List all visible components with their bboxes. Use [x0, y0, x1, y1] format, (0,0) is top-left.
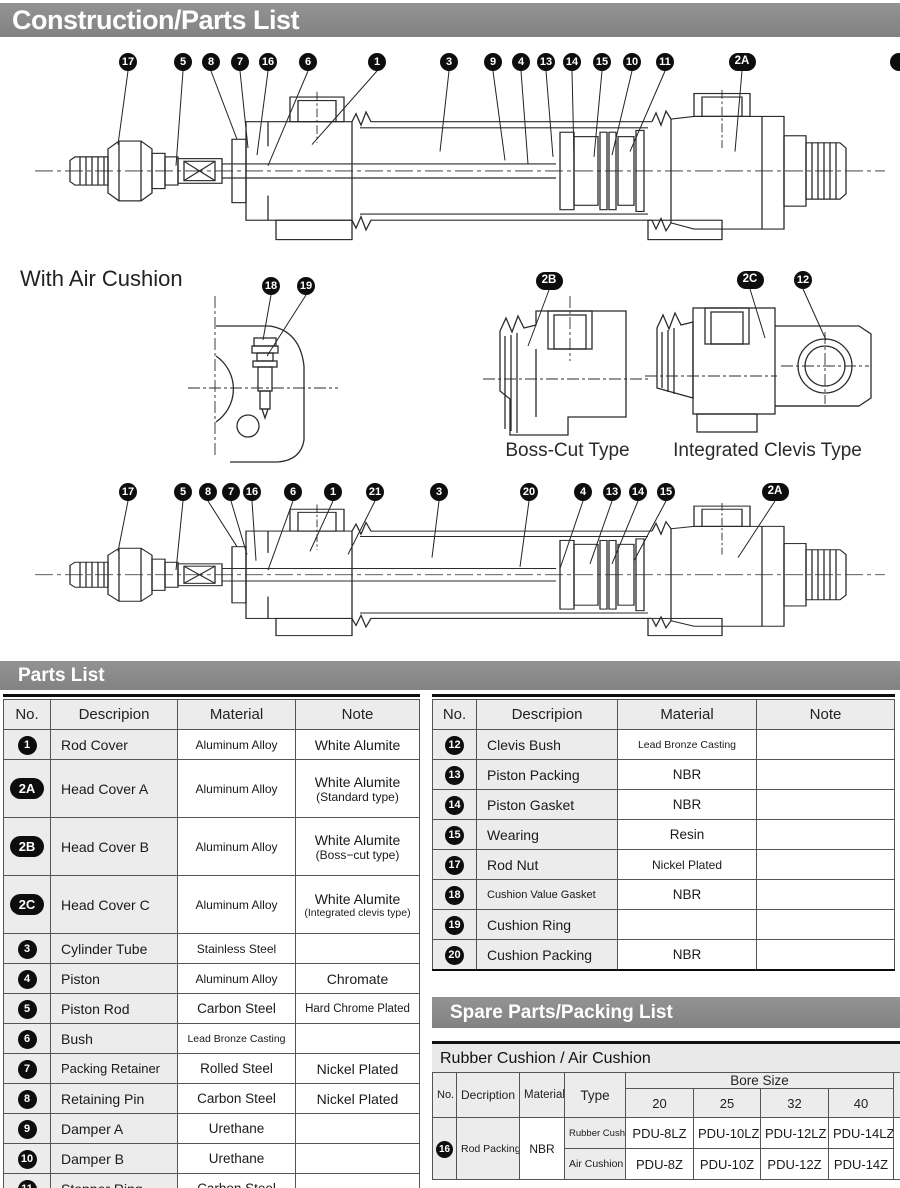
part-no-cell: 17 — [433, 850, 477, 880]
part-number-badge: 1 — [18, 736, 37, 755]
note-cell: White Alumite(Standard type) — [296, 760, 420, 818]
bore-size-header: Bore Size — [626, 1073, 894, 1089]
material-cell: Aluminum Alloy — [178, 876, 296, 934]
note-cell — [757, 820, 895, 850]
part-no-cell: 16 — [433, 1118, 457, 1180]
parts-table: No.DescripionMaterialNote12Clevis BushLe… — [432, 699, 895, 971]
note-cell — [757, 940, 895, 971]
table-row: 5Piston RodCarbon SteelHard Chrome Plate… — [4, 994, 420, 1024]
table-row: 4PistonAluminum AlloyChromate — [4, 964, 420, 994]
part-number-badge: 17 — [445, 856, 464, 875]
column-header: Descripion — [51, 700, 178, 730]
spare-parts-table: No.DecriptionMaterialTypeBore Size202532… — [432, 1072, 900, 1180]
description-cell: Rod Nut — [477, 850, 618, 880]
parts-table-right: No.DescripionMaterialNote12Clevis BushLe… — [432, 694, 895, 971]
part-number-badge: 20 — [445, 946, 464, 965]
part-no-cell: 14 — [433, 790, 477, 820]
table-row: 2AHead Cover AAluminum AlloyWhite Alumit… — [4, 760, 420, 818]
material-cell: Carbon Steel — [178, 1084, 296, 1114]
part-no-cell: 2C — [4, 876, 51, 934]
part-number-badge: 16 — [436, 1141, 453, 1158]
material-cell — [618, 910, 757, 940]
description-cell: Cylinder Tube — [51, 934, 178, 964]
description-cell: Head Cover A — [51, 760, 178, 818]
part-no-cell: 3 — [4, 934, 51, 964]
part-number-badge: 13 — [445, 766, 464, 785]
description-cell: Packing Retainer — [51, 1054, 178, 1084]
callout-15: 15 — [657, 483, 675, 501]
part-no-cell: 8 — [4, 1084, 51, 1114]
part-no-cell: 13 — [433, 760, 477, 790]
note-cell: Nickel Plated — [296, 1084, 420, 1114]
spare-data-row: 16Rod PackingNBRRubber CushionPDU-8LZPDU… — [433, 1118, 900, 1149]
callout-16: 16 — [243, 483, 261, 501]
callout-12: 12 — [794, 271, 812, 289]
note-cell: White Alumite(Integrated clevis type) — [296, 876, 420, 934]
column-header: Material — [178, 700, 296, 730]
callout-9: 9 — [484, 53, 502, 71]
callout-8: 8 — [199, 483, 217, 501]
part-number-badge: 6 — [18, 1030, 37, 1049]
description-cell: Rod Packing — [457, 1118, 520, 1180]
material-cell: NBR — [618, 880, 757, 910]
table-row: 15WearingResin — [433, 820, 895, 850]
callout-3: 3 — [430, 483, 448, 501]
description-cell: Damper B — [51, 1144, 178, 1174]
with-air-cushion-label: With Air Cushion — [20, 266, 183, 292]
callout-17: 17 — [119, 483, 137, 501]
callout-5: 5 — [174, 53, 192, 71]
part-no-cell: 15 — [433, 820, 477, 850]
table-row: 13Piston PackingNBR — [433, 760, 895, 790]
description-cell: Cushion Packing — [477, 940, 618, 971]
table-row: 3Cylinder TubeStainless Steel — [4, 934, 420, 964]
column-header: No. — [433, 700, 477, 730]
note-cell — [296, 1114, 420, 1144]
note-subtext: (Integrated clevis type) — [300, 907, 415, 919]
type-cell: Air Cushion — [565, 1149, 626, 1180]
catalog-page: Construction/Parts List — [0, 0, 900, 1188]
column-header: Note — [296, 700, 420, 730]
callout-3: 3 — [440, 53, 458, 71]
description-cell: Rod Cover — [51, 730, 178, 760]
callout-1: 1 — [324, 483, 342, 501]
clevis-caption: Integrated Clevis Type — [640, 440, 895, 462]
table-row: 7Packing RetainerRolled SteelNickel Plat… — [4, 1054, 420, 1084]
spare-header-row-1: No.DecriptionMaterialTypeBore Size — [433, 1073, 900, 1089]
part-no-cell: 9 — [4, 1114, 51, 1144]
note-cell — [757, 850, 895, 880]
clipped-column — [894, 1073, 900, 1118]
model-cell: PDU-14LZ — [829, 1118, 894, 1149]
air-cushion-valve-drawing — [170, 276, 390, 466]
material-cell: Carbon Steel — [178, 1174, 296, 1188]
type-cell: Rubber Cushion — [565, 1118, 626, 1149]
material-cell: Lead Bronze Casting — [618, 730, 757, 760]
callout-14: 14 — [563, 53, 581, 71]
bore-size-value: 25 — [694, 1089, 761, 1118]
cushion-type-band: Rubber Cushion / Air Cushion — [432, 1041, 900, 1075]
bore-size-value: 40 — [829, 1089, 894, 1118]
callout-2A: 2A — [762, 483, 789, 501]
table-row: 2BHead Cover BAluminum AlloyWhite Alumit… — [4, 818, 420, 876]
note-cell — [296, 934, 420, 964]
material-cell: NBR — [520, 1118, 565, 1180]
table-row: 1Rod CoverAluminum AlloyWhite Alumite — [4, 730, 420, 760]
note-cell — [757, 730, 895, 760]
part-number-badge: 10 — [18, 1150, 37, 1169]
note-subtext: (Standard type) — [300, 790, 415, 804]
description-cell: Cushion Ring — [477, 910, 618, 940]
callout-6: 6 — [284, 483, 302, 501]
part-number-badge: 19 — [445, 916, 464, 935]
callout-6: 6 — [299, 53, 317, 71]
cylinder-cross-section-drawing — [0, 45, 900, 263]
callout-15: 15 — [593, 53, 611, 71]
part-no-cell: 1 — [4, 730, 51, 760]
note-cell: White Alumite(Boss−cut type) — [296, 818, 420, 876]
table-row: 10Damper BUrethane — [4, 1144, 420, 1174]
model-cell: PDU-8LZ — [626, 1118, 694, 1149]
part-number-badge: 14 — [445, 796, 464, 815]
material-cell: Rolled Steel — [178, 1054, 296, 1084]
part-number-badge: 2C — [10, 894, 44, 915]
note-cell — [757, 760, 895, 790]
callout-13: 13 — [603, 483, 621, 501]
diagram-standard-cylinder: 17587166139413141510112A — [0, 45, 900, 263]
part-number-badge: 7 — [18, 1060, 37, 1079]
material-cell: Aluminum Alloy — [178, 760, 296, 818]
column-header: Material — [520, 1073, 565, 1118]
part-no-cell: 4 — [4, 964, 51, 994]
cushion-type-label: Rubber Cushion / Air Cushion — [432, 1050, 651, 1068]
description-cell: Head Cover C — [51, 876, 178, 934]
column-header: Type — [565, 1073, 626, 1118]
material-cell: NBR — [618, 760, 757, 790]
part-no-cell: 18 — [433, 880, 477, 910]
boss-cut-head-cover-drawing — [478, 271, 658, 451]
callout-17: 17 — [119, 53, 137, 71]
part-no-cell: 2B — [4, 818, 51, 876]
table-header-row: No.DescripionMaterialNote — [4, 700, 420, 730]
model-cell: PDU-12LZ — [761, 1118, 829, 1149]
model-cell: PDU-14Z — [829, 1149, 894, 1180]
bore-size-value: 32 — [761, 1089, 829, 1118]
callout-7: 7 — [222, 483, 240, 501]
callout-2A: 2A — [729, 53, 756, 71]
parts-table: No.DescripionMaterialNote1Rod CoverAlumi… — [3, 699, 420, 1188]
spare-parts-bar: Spare Parts/Packing List — [432, 997, 900, 1028]
model-cell: PDU-10Z — [694, 1149, 761, 1180]
note-cell: White Alumite — [296, 730, 420, 760]
callout-1: 1 — [368, 53, 386, 71]
callout-7: 7 — [231, 53, 249, 71]
material-cell: Nickel Plated — [618, 850, 757, 880]
part-no-cell: 19 — [433, 910, 477, 940]
material-cell: Aluminum Alloy — [178, 730, 296, 760]
part-no-cell: 20 — [433, 940, 477, 971]
table-row: 18Cushion Value GasketNBR — [433, 880, 895, 910]
description-cell: Clevis Bush — [477, 730, 618, 760]
diagram-air-cushion-cylinder: 1758716612132041314152A — [0, 473, 900, 658]
material-cell: Urethane — [178, 1144, 296, 1174]
description-cell: Piston — [51, 964, 178, 994]
material-cell: Aluminum Alloy — [178, 964, 296, 994]
note-cell — [757, 790, 895, 820]
callout-2C: 2C — [737, 271, 764, 289]
part-no-cell: 10 — [4, 1144, 51, 1174]
page-title-bar: Construction/Parts List — [0, 3, 900, 37]
callout-11: 11 — [656, 53, 674, 71]
material-cell: NBR — [618, 790, 757, 820]
material-cell: Stainless Steel — [178, 934, 296, 964]
material-cell: Carbon Steel — [178, 994, 296, 1024]
description-cell: Head Cover B — [51, 818, 178, 876]
callout-20: 20 — [520, 483, 538, 501]
material-cell: NBR — [618, 940, 757, 971]
part-no-cell: 5 — [4, 994, 51, 1024]
bore-size-value: 20 — [626, 1089, 694, 1118]
description-cell: Damper A — [51, 1114, 178, 1144]
callout-4: 4 — [574, 483, 592, 501]
note-cell — [757, 880, 895, 910]
model-cell: PDU-12Z — [761, 1149, 829, 1180]
air-cushion-detail-drawing: 1819 — [170, 276, 390, 466]
part-number-badge: 2A — [10, 778, 44, 799]
parts-list-bar: Parts List — [0, 661, 900, 690]
description-cell: Retaining Pin — [51, 1084, 178, 1114]
material-cell: Urethane — [178, 1114, 296, 1144]
callout-16: 16 — [259, 53, 277, 71]
column-header: No. — [4, 700, 51, 730]
note-cell: Nickel Plated — [296, 1054, 420, 1084]
part-number-badge: 5 — [18, 1000, 37, 1019]
part-number-badge: 4 — [18, 970, 37, 989]
callout-21: 21 — [366, 483, 384, 501]
table-row: 12Clevis BushLead Bronze Casting — [433, 730, 895, 760]
clipped-cell — [894, 1118, 900, 1180]
part-number-badge: 3 — [18, 940, 37, 959]
column-header: No. — [433, 1073, 457, 1118]
model-cell: PDU-10LZ — [694, 1118, 761, 1149]
part-no-cell: 12 — [433, 730, 477, 760]
part-no-cell: 2A — [4, 760, 51, 818]
table-row: 11Stopper RingCarbon Steel — [4, 1174, 420, 1188]
note-cell: Chromate — [296, 964, 420, 994]
boss-cut-detail-drawing: 2B — [478, 271, 658, 451]
column-header: Decription — [457, 1073, 520, 1118]
note-subtext: (Boss−cut type) — [300, 848, 415, 862]
description-cell: Piston Rod — [51, 994, 178, 1024]
description-cell: Wearing — [477, 820, 618, 850]
note-cell — [296, 1144, 420, 1174]
part-no-cell: 7 — [4, 1054, 51, 1084]
part-number-badge: 18 — [445, 886, 464, 905]
note-cell — [296, 1024, 420, 1054]
description-cell: Bush — [51, 1024, 178, 1054]
parts-table-left: No.DescripionMaterialNote1Rod CoverAlumi… — [3, 694, 420, 1188]
table-row: 20Cushion PackingNBR — [433, 940, 895, 971]
table-row: 17Rod NutNickel Plated — [433, 850, 895, 880]
table-header-row: No.DescripionMaterialNote — [433, 700, 895, 730]
part-number-badge: 11 — [18, 1180, 37, 1188]
callout-13: 13 — [537, 53, 555, 71]
material-cell: Resin — [618, 820, 757, 850]
description-cell: Piston Packing — [477, 760, 618, 790]
clevis-head-cover-drawing — [645, 270, 890, 450]
page-title: Construction/Parts List — [0, 5, 299, 36]
material-cell: Lead Bronze Casting — [178, 1024, 296, 1054]
callout-5: 5 — [174, 483, 192, 501]
part-number-badge: 15 — [445, 826, 464, 845]
table-row: 2CHead Cover CAluminum AlloyWhite Alumit… — [4, 876, 420, 934]
table-row: 6BushLead Bronze Casting — [4, 1024, 420, 1054]
table-row: 9Damper AUrethane — [4, 1114, 420, 1144]
note-cell — [757, 910, 895, 940]
description-cell: Stopper Ring — [51, 1174, 178, 1188]
part-number-badge: 9 — [18, 1120, 37, 1139]
model-cell: PDU-8Z — [626, 1149, 694, 1180]
column-header: Note — [757, 700, 895, 730]
column-header: Descripion — [477, 700, 618, 730]
note-cell: Hard Chrome Plated — [296, 994, 420, 1024]
part-number-badge: 8 — [18, 1090, 37, 1109]
callout-4: 4 — [512, 53, 530, 71]
part-number-badge: 2B — [10, 836, 44, 857]
callout-8: 8 — [202, 53, 220, 71]
air-cushion-cylinder-drawing — [0, 473, 900, 658]
parts-list-title: Parts List — [0, 665, 105, 687]
part-number-badge: 12 — [445, 736, 464, 755]
table-row: 19Cushion Ring — [433, 910, 895, 940]
callout-19: 19 — [297, 277, 315, 295]
callout-10: 10 — [623, 53, 641, 71]
part-no-cell: 6 — [4, 1024, 51, 1054]
spare-table: No.DecriptionMaterialTypeBore Size202532… — [432, 1072, 900, 1180]
callout-2B: 2B — [536, 272, 563, 290]
part-no-cell: 11 — [4, 1174, 51, 1188]
table-row: 14Piston GasketNBR — [433, 790, 895, 820]
callout-18: 18 — [262, 277, 280, 295]
callout-14: 14 — [629, 483, 647, 501]
table-row: 8Retaining PinCarbon SteelNickel Plated — [4, 1084, 420, 1114]
material-cell: Aluminum Alloy — [178, 818, 296, 876]
boss-cut-caption: Boss-Cut Type — [470, 440, 665, 462]
spare-parts-title: Spare Parts/Packing List — [432, 1002, 673, 1024]
description-cell: Piston Gasket — [477, 790, 618, 820]
description-cell: Cushion Value Gasket — [477, 880, 618, 910]
note-cell — [296, 1174, 420, 1188]
column-header: Material — [618, 700, 757, 730]
integrated-clevis-detail-drawing: 2C12 — [645, 270, 890, 450]
